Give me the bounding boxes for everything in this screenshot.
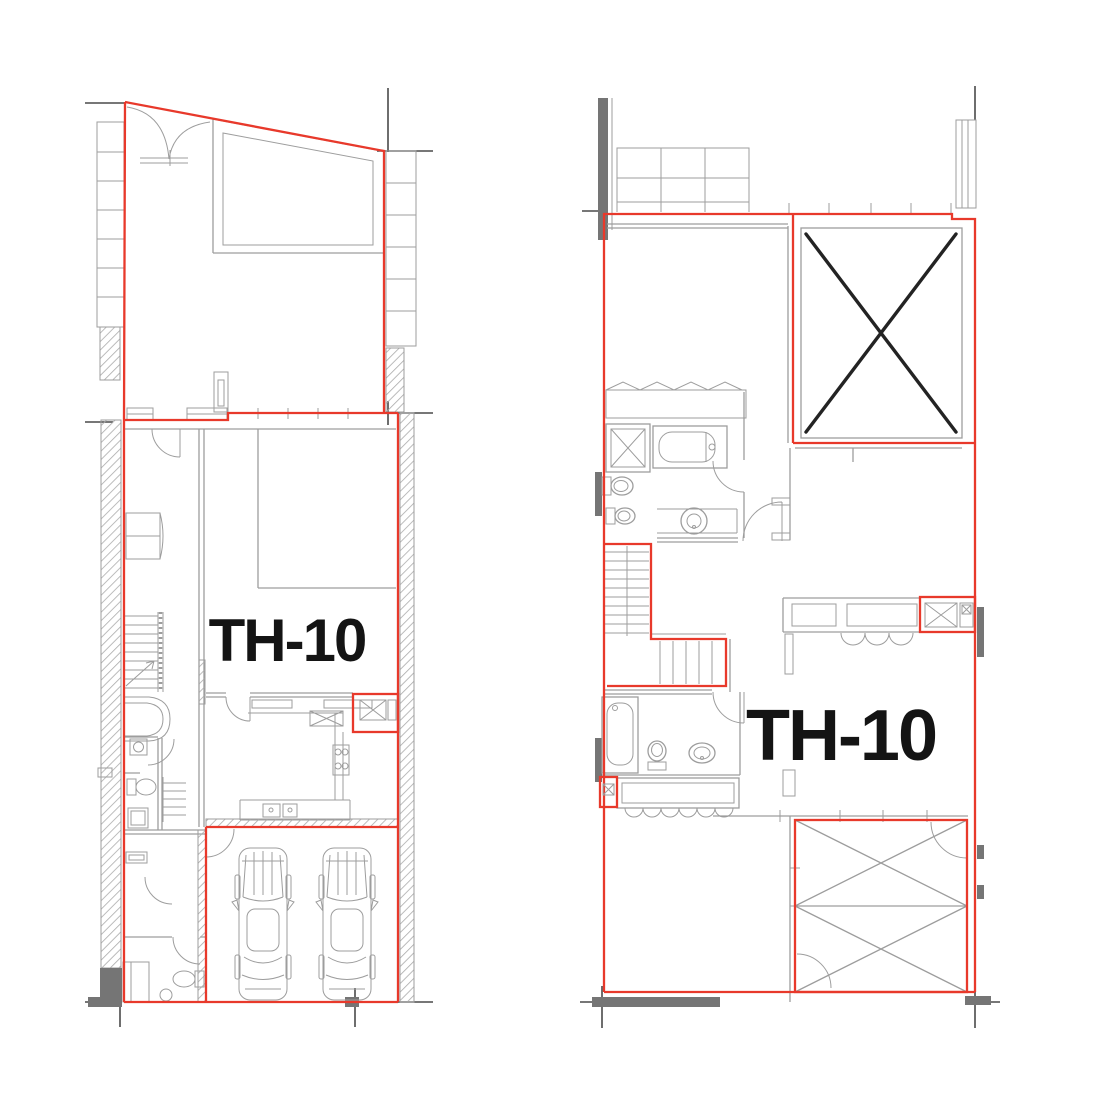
window-top-right	[956, 120, 976, 208]
unit-boundary-outline	[124, 102, 398, 1002]
floor-plans-drawing: TH-10	[0, 0, 1100, 1100]
second-bathroom	[602, 692, 744, 817]
floor-plan-sheet: TH-10	[0, 0, 1100, 1100]
survey-tick-marks	[85, 88, 433, 1027]
void-double-height	[801, 228, 962, 438]
master-bathroom	[602, 382, 746, 534]
unit-label: TH-10	[209, 607, 366, 674]
service-shaft	[360, 700, 396, 720]
garage	[206, 829, 378, 1000]
car	[232, 848, 294, 1000]
interior-walls-left	[124, 429, 396, 1002]
roof-terrace-skylight	[213, 119, 383, 412]
exterior-wall-hatch	[88, 413, 414, 1007]
shaft-bedroom	[925, 603, 973, 627]
living-room-furniture	[126, 513, 163, 559]
staircase-upper	[604, 546, 726, 684]
pergola-grid	[617, 148, 951, 213]
bedroom-wardrobe	[783, 598, 920, 645]
floor-plan-right: TH-10	[580, 86, 1000, 1028]
unit-label: TH-10	[746, 696, 936, 776]
car	[316, 848, 378, 1000]
floor-plan-left: TH-10	[85, 88, 433, 1027]
terrace-deck	[713, 810, 968, 1002]
column-grid-strips	[97, 122, 416, 412]
